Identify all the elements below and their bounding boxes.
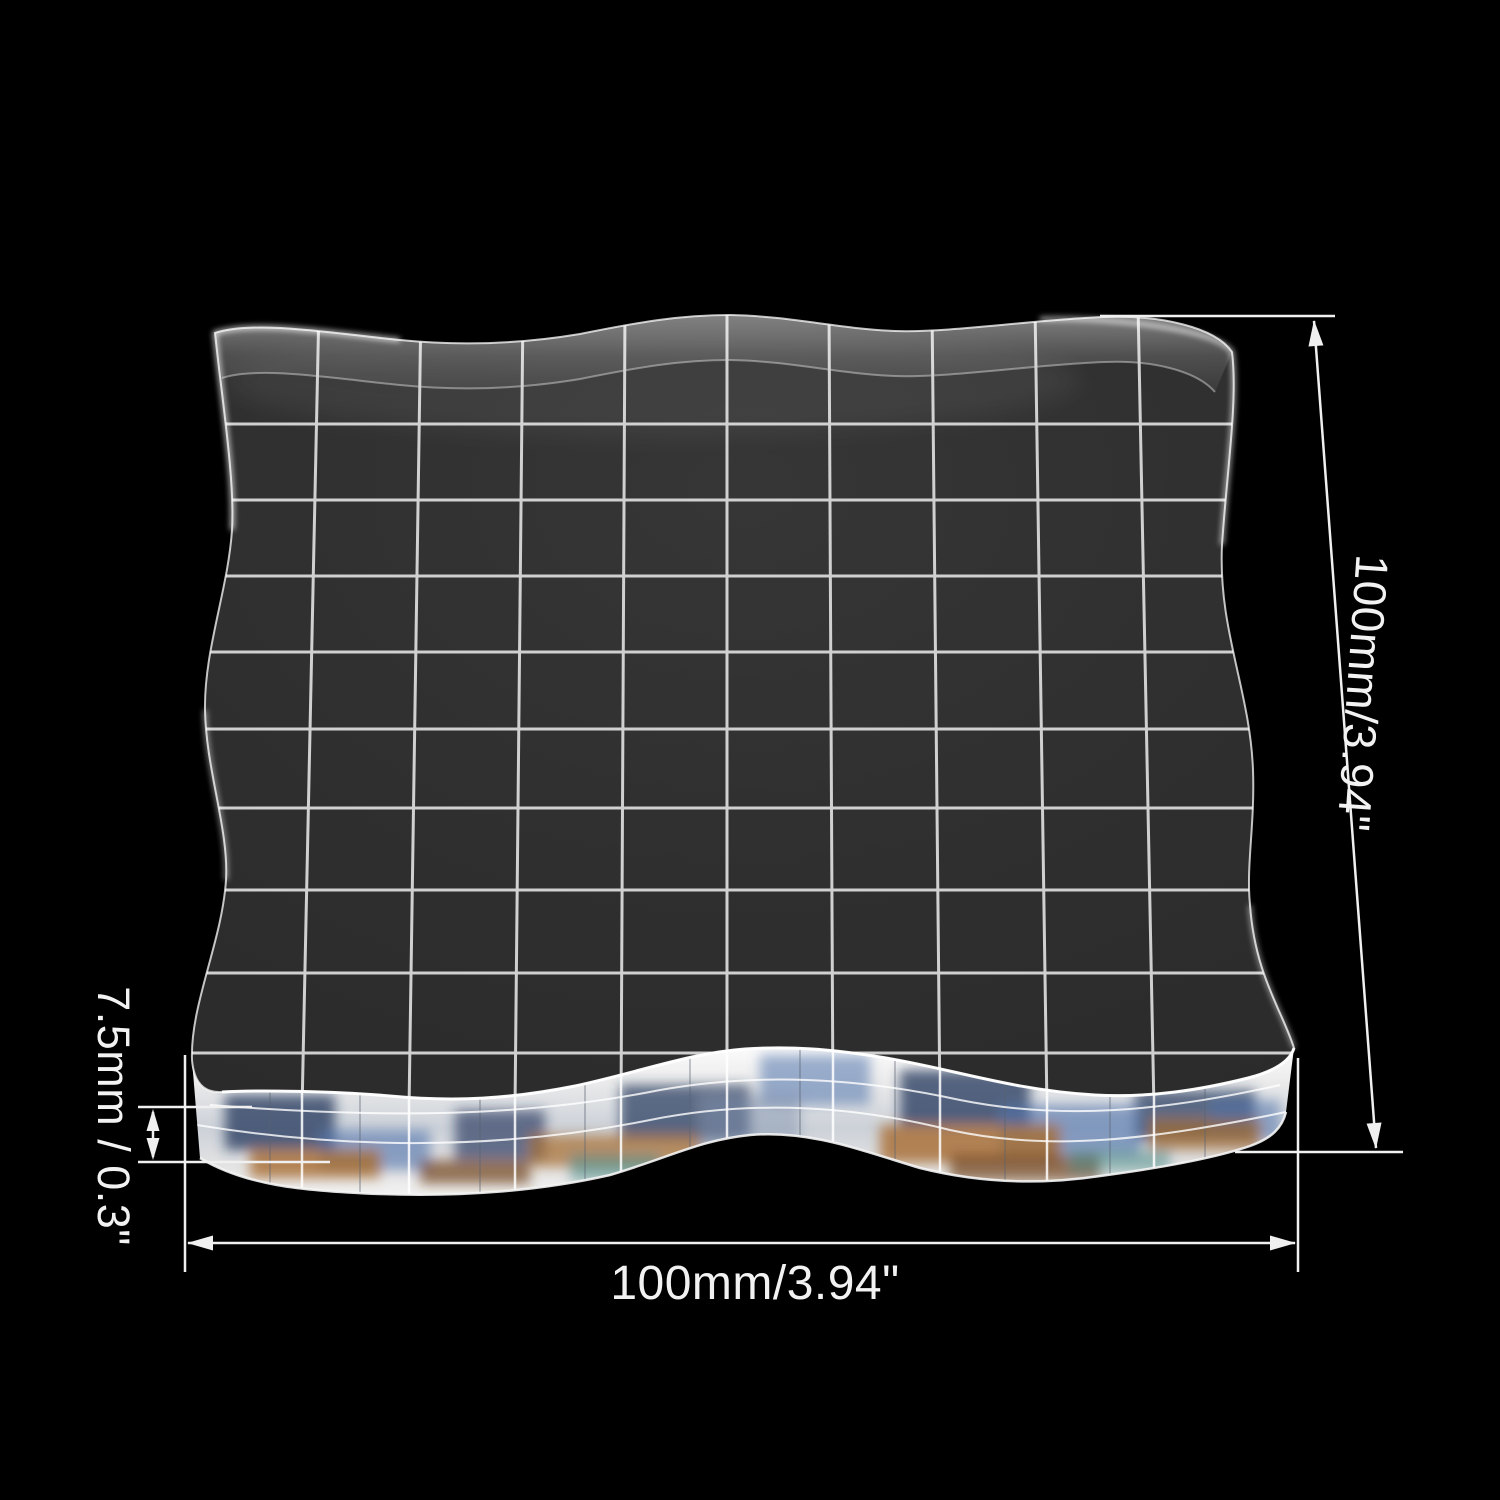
width-dimension-label: 100mm/3.94" [610,1257,899,1310]
product-photo: 100mm/3.94" 100mm/3.94" 7.5mm / 0.3" [0,0,1500,1500]
thickness-dimension-label: 7.5mm / 0.3" [88,986,139,1246]
block-top-face [180,305,1300,1110]
acrylic-block [180,305,1300,1210]
acrylic-block-dimension-diagram: 100mm/3.94" 100mm/3.94" 7.5mm / 0.3" [0,0,1500,1500]
